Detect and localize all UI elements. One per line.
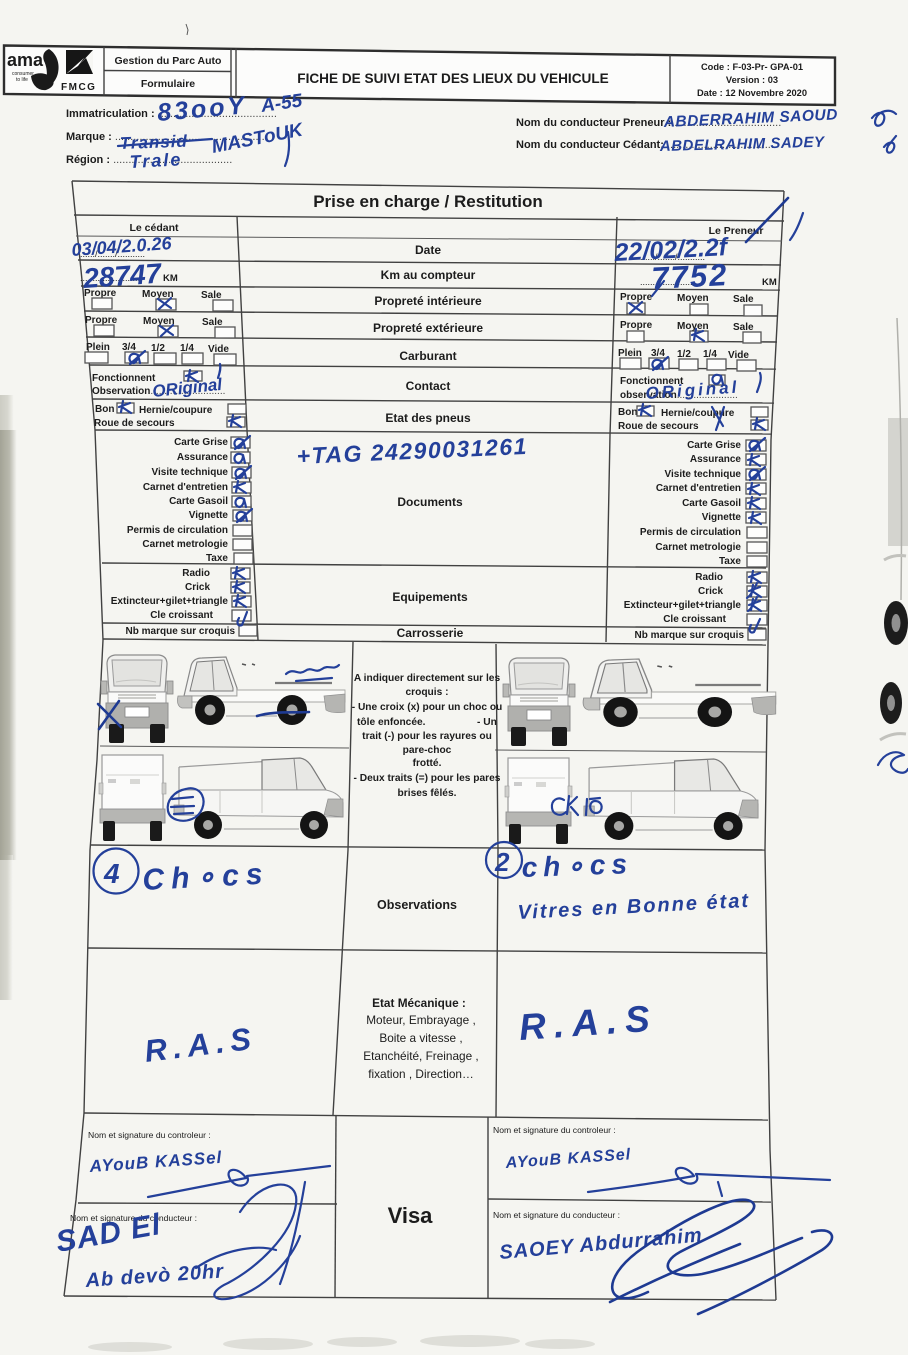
svg-text:Carte Grise: Carte Grise — [174, 437, 228, 448]
svg-text:Assurance: Assurance — [690, 454, 742, 465]
svg-text:Contact: Contact — [406, 379, 451, 393]
svg-text:4: 4 — [103, 858, 120, 889]
svg-text:Propre: Propre — [620, 320, 653, 331]
svg-text:ch∘cs: ch∘cs — [521, 848, 633, 883]
svg-text:Version : 03: Version : 03 — [726, 75, 778, 85]
svg-text:Etat des pneus: Etat des pneus — [385, 411, 471, 425]
svg-text:to life: to life — [16, 77, 28, 83]
svg-text:Taxe: Taxe — [719, 556, 741, 567]
svg-text:Roue de secours: Roue de secours — [618, 421, 699, 432]
svg-text:- Un: - Un — [477, 717, 497, 728]
svg-text:Propre: Propre — [620, 292, 653, 303]
svg-text:tôle enfoncée.: tôle enfoncée. — [357, 717, 426, 728]
svg-text:Propreté intérieure: Propreté intérieure — [374, 294, 482, 308]
svg-text:Moteur, Embrayage ,: Moteur, Embrayage , — [366, 1013, 476, 1027]
svg-text:Carnet d'entretien: Carnet d'entretien — [143, 482, 228, 493]
svg-text:Visite technique: Visite technique — [151, 467, 228, 478]
svg-text:Visite technique: Visite technique — [664, 469, 741, 480]
svg-text:Carrosserie: Carrosserie — [397, 626, 464, 640]
svg-text:Formulaire: Formulaire — [141, 78, 195, 90]
svg-text:fixation , Direction…: fixation , Direction… — [368, 1067, 474, 1081]
svg-text:Crick: Crick — [185, 582, 210, 593]
svg-text:frotté.: frotté. — [413, 758, 442, 769]
svg-text:Trale: Trale — [129, 149, 183, 172]
svg-text:Prise en charge / Restitution: Prise en charge / Restitution — [313, 192, 543, 211]
svg-text:KM: KM — [762, 277, 777, 288]
svg-text:Extincteur+gilet+triangle: Extincteur+gilet+triangle — [624, 600, 742, 611]
svg-text:- Deux traits (=) pour les par: - Deux traits (=) pour les pares — [354, 773, 501, 784]
svg-text:Etanchéité, Freinage ,: Etanchéité, Freinage , — [363, 1049, 478, 1063]
svg-text:Etat Mécanique :: Etat Mécanique : — [372, 996, 466, 1010]
svg-text:Visa: Visa — [388, 1203, 434, 1228]
svg-text:Carburant: Carburant — [399, 349, 456, 363]
svg-text:Date : 12 Novembre 2020: Date : 12 Novembre 2020 — [697, 88, 807, 98]
svg-text:Permis de circulation: Permis de circulation — [127, 525, 228, 536]
svg-text:Carnet metrologie: Carnet metrologie — [655, 542, 741, 553]
svg-text:Carte Gasoil: Carte Gasoil — [169, 496, 228, 507]
svg-text:Nom et signature du controleur: Nom et signature du controleur : — [88, 1130, 211, 1140]
svg-text:ama: ama — [7, 50, 44, 70]
svg-text:Nb marque sur croquis: Nb marque sur croquis — [126, 626, 236, 637]
svg-text:Ch∘cs: Ch∘cs — [142, 857, 271, 897]
svg-text:Gestion du Parc Auto: Gestion du Parc Auto — [115, 55, 222, 67]
svg-text:FICHE DE SUIVI ETAT DES LIEUX: FICHE DE SUIVI ETAT DES LIEUX DU VEHICUL… — [297, 71, 608, 86]
svg-text:brises fêlés.: brises fêlés. — [398, 788, 457, 799]
svg-text:2: 2 — [494, 847, 510, 877]
svg-text:Carte Gasoil: Carte Gasoil — [682, 498, 741, 509]
svg-text:Equipements: Equipements — [392, 590, 468, 604]
svg-text:Nom et signature du controleur: Nom et signature du controleur : — [493, 1125, 616, 1135]
svg-text:KM: KM — [163, 273, 178, 284]
svg-text:Taxe: Taxe — [206, 553, 228, 564]
svg-text:Nom et signature du conducteur: Nom et signature du conducteur : — [493, 1210, 620, 1220]
svg-text:Extincteur+gilet+triangle: Extincteur+gilet+triangle — [111, 596, 229, 607]
svg-text:Moyen: Moyen — [677, 293, 709, 304]
svg-text:Boite a vitesse ,: Boite a vitesse , — [379, 1031, 462, 1045]
svg-text:Cle croissant: Cle croissant — [663, 614, 726, 625]
svg-text:A indiquer directement sur les: A indiquer directement sur les — [354, 673, 501, 684]
svg-text:FMCG: FMCG — [61, 82, 96, 93]
svg-text:Carte Grise: Carte Grise — [687, 440, 741, 451]
svg-text:Bon: Bon — [95, 404, 114, 415]
svg-text:trait (-) pour les rayures ou: trait (-) pour les rayures ou — [362, 731, 492, 742]
svg-text:Bon: Bon — [618, 407, 637, 418]
svg-text:Vignette: Vignette — [702, 512, 742, 523]
svg-text:Cle croissant: Cle croissant — [150, 610, 213, 621]
svg-text:Le cédant: Le cédant — [129, 222, 179, 234]
svg-text:pare-choc: pare-choc — [403, 745, 452, 756]
svg-text:Radio: Radio — [182, 568, 210, 579]
svg-text:Nb marque sur croquis: Nb marque sur croquis — [635, 630, 745, 641]
svg-text:Fonctionnent: Fonctionnent — [92, 373, 156, 384]
svg-text:Radio: Radio — [695, 572, 723, 583]
svg-text:Crick: Crick — [698, 586, 723, 597]
svg-text:Hernie/coupure: Hernie/coupure — [139, 405, 213, 416]
svg-text:Propreté extérieure: Propreté extérieure — [373, 321, 483, 335]
svg-text:Assurance: Assurance — [177, 452, 229, 463]
svg-text:Observations: Observations — [377, 898, 457, 912]
svg-text:Permis de circulation: Permis de circulation — [640, 527, 741, 538]
svg-text:Documents: Documents — [397, 495, 463, 509]
svg-text:Carnet metrologie: Carnet metrologie — [142, 539, 228, 550]
svg-text:Sale: Sale — [733, 294, 754, 305]
svg-text:7752: 7752 — [651, 257, 730, 296]
svg-text:Km au compteur: Km au compteur — [381, 268, 476, 282]
svg-text:Roue de secours: Roue de secours — [94, 418, 175, 429]
svg-text:Carnet d'entretien: Carnet d'entretien — [656, 483, 741, 494]
svg-text:Vignette: Vignette — [189, 510, 229, 521]
svg-text:- Une croix (x) pour un choc o: - Une croix (x) pour un choc ou — [352, 702, 503, 713]
svg-text:28747: 28747 — [81, 258, 163, 295]
svg-text:Code : F-03-Pr- GPA-01: Code : F-03-Pr- GPA-01 — [701, 62, 803, 72]
svg-text:Date: Date — [415, 243, 441, 257]
svg-text:croquis :: croquis : — [405, 687, 448, 698]
